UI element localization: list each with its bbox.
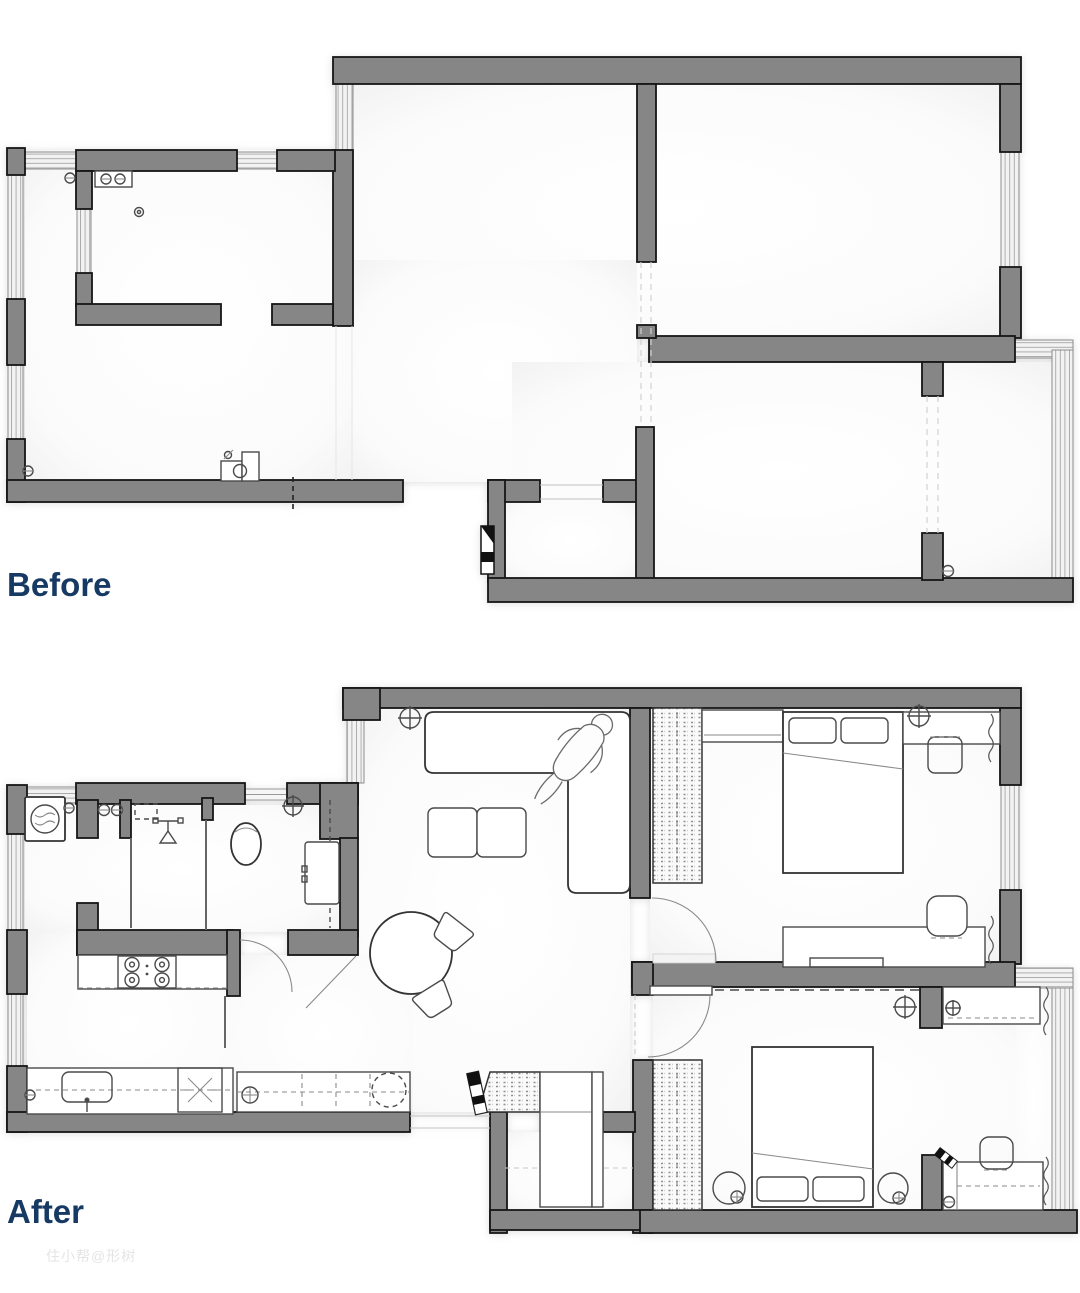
wall-segment	[649, 336, 1015, 362]
window-band	[1001, 785, 1019, 890]
desk-chair-part	[927, 896, 967, 936]
desk-chair	[927, 896, 967, 938]
double-bed-part	[783, 712, 903, 873]
door-threshold	[653, 954, 715, 963]
washing-machine-icon	[25, 797, 65, 841]
entry-door-marker	[481, 526, 494, 574]
wall-segment	[630, 708, 650, 898]
door-leaf	[650, 986, 712, 995]
kitchen-sink-icon-part	[85, 1098, 90, 1103]
wall-segment	[7, 930, 27, 994]
wall-segment	[77, 800, 98, 838]
after-label: After	[7, 1193, 84, 1231]
wall-segment	[288, 930, 358, 955]
wall-segment	[76, 171, 92, 209]
wall-segment	[1000, 890, 1021, 964]
wall-segment	[488, 578, 1073, 602]
wall-segment	[636, 427, 654, 582]
vanity-cabinet-part	[305, 842, 339, 904]
entry-cabinets-part	[592, 1072, 603, 1207]
floorplan-canvas	[0, 0, 1080, 1293]
window-band	[347, 720, 364, 783]
after-floor-plan	[7, 688, 1077, 1233]
entry-cabinets-part	[540, 1072, 592, 1207]
wall-segment	[272, 304, 333, 325]
small-window	[245, 789, 287, 800]
wall-segment	[7, 1112, 410, 1132]
window-band	[237, 152, 277, 169]
before-floors-part	[505, 500, 637, 580]
balcony-window-band	[1015, 968, 1073, 988]
wall-segment	[227, 930, 240, 996]
window-band	[25, 152, 76, 169]
wall-segment	[633, 1060, 653, 1233]
bay-window-band	[1052, 350, 1073, 580]
vanity-cabinet	[302, 842, 339, 904]
coffee-table	[428, 808, 477, 857]
window-band	[336, 84, 353, 150]
wall-segment	[1000, 708, 1021, 785]
wall-segment	[7, 299, 25, 365]
wall-segment	[7, 148, 25, 175]
entry-door-marker-part	[481, 552, 494, 562]
kitchen-counter	[27, 1068, 233, 1114]
toilet-icon-part	[231, 823, 261, 865]
wall-segment	[333, 57, 1021, 84]
double-bed	[752, 1047, 873, 1207]
wall-segment	[76, 150, 237, 171]
wall-segment	[640, 1210, 1077, 1233]
coffee-table	[477, 808, 526, 857]
wall-segment	[1000, 267, 1021, 338]
wall-segment	[76, 273, 92, 306]
wall-segment	[120, 800, 131, 838]
cooktop-icon-part	[146, 973, 149, 976]
wall-segment	[333, 150, 353, 326]
after-floors-part	[25, 805, 340, 932]
window-band	[8, 992, 23, 1068]
wall-segment	[77, 930, 233, 955]
double-bed	[783, 712, 903, 873]
wall-segment	[340, 838, 358, 936]
wall-segment	[922, 362, 943, 396]
wall-segment	[922, 1155, 942, 1212]
toilet-icon	[231, 823, 261, 865]
window-band	[8, 364, 23, 440]
kitchen-counter	[78, 955, 227, 989]
window-band	[77, 208, 91, 274]
entry-cabinets	[540, 1072, 603, 1207]
double-sink-icon	[95, 171, 132, 187]
window-band	[8, 174, 23, 300]
before-floor-plan	[7, 57, 1073, 602]
wall-segment	[7, 785, 27, 834]
window-band	[8, 832, 23, 932]
wall-segment	[7, 480, 403, 502]
wall-segment	[343, 688, 380, 720]
wall-segment	[277, 150, 335, 171]
counter	[903, 712, 1000, 744]
wall-segment	[922, 533, 943, 580]
wall-segment	[202, 798, 213, 820]
wall-segment	[1000, 84, 1021, 152]
wall-segment	[76, 304, 221, 325]
wall-segment	[490, 1210, 653, 1230]
wall-segment	[920, 987, 942, 1028]
before-label: Before	[7, 566, 112, 604]
wall-segment	[320, 783, 358, 839]
wall-segment	[76, 783, 245, 804]
before-after-floorplan-image: Before After 住小帮@形树	[0, 0, 1080, 1293]
watermark-text: 住小帮@形树	[46, 1246, 136, 1266]
wall-segment	[637, 84, 656, 262]
balcony-window-band	[1052, 988, 1073, 1212]
wall-segment	[603, 1112, 635, 1132]
shelf	[702, 710, 783, 742]
wall-segment	[637, 325, 656, 338]
cooktop-icon-part	[146, 965, 149, 968]
window-band	[1001, 152, 1019, 267]
